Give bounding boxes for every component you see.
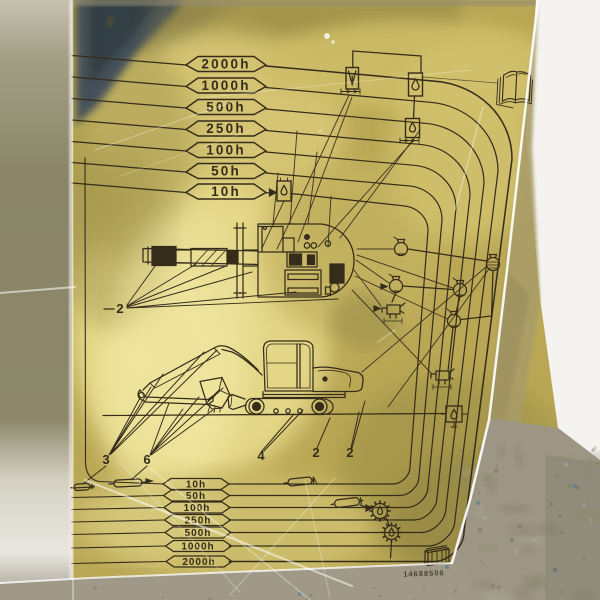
svg-text:1000h: 1000h bbox=[201, 78, 250, 93]
svg-text:2000h: 2000h bbox=[182, 557, 215, 568]
svg-text:100h: 100h bbox=[206, 143, 246, 158]
svg-text:2: 2 bbox=[346, 445, 353, 460]
svg-text:50h: 50h bbox=[211, 164, 241, 179]
svg-text:4: 4 bbox=[257, 448, 265, 463]
svg-text:10h: 10h bbox=[211, 184, 241, 199]
svg-text:2: 2 bbox=[312, 445, 319, 460]
svg-text:100h: 100h bbox=[184, 503, 211, 514]
svg-text:2: 2 bbox=[116, 301, 123, 316]
svg-text:14688506: 14688506 bbox=[403, 568, 445, 578]
svg-text:500h: 500h bbox=[206, 100, 246, 115]
svg-text:2000h: 2000h bbox=[201, 57, 250, 72]
svg-text:10h: 10h bbox=[186, 480, 206, 491]
svg-text:3: 3 bbox=[102, 452, 109, 467]
svg-text:6: 6 bbox=[143, 452, 150, 467]
